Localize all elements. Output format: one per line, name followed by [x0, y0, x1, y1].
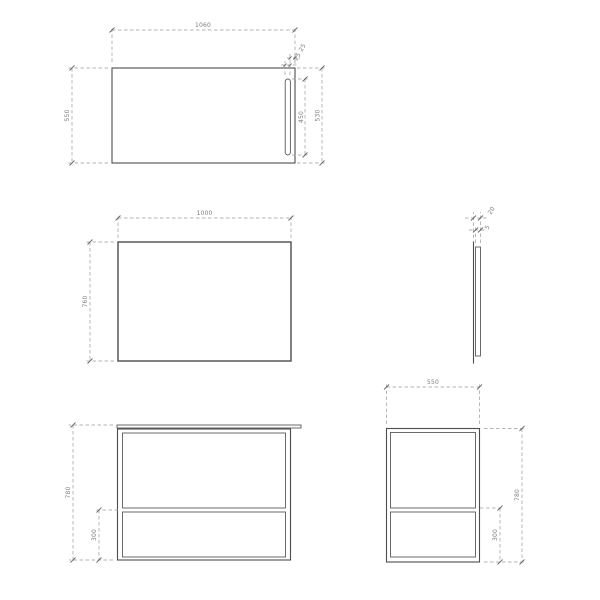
- cabinet-countertop-edge: [117, 425, 301, 428]
- cabinet-drawer-height-dimension: 300: [91, 508, 118, 563]
- cabinet-height-dimension: 780: [65, 423, 113, 563]
- dimension-label: 780: [65, 486, 72, 498]
- dimension-line: [86, 242, 114, 361]
- cabinet-side-height-dimension: 780: [484, 426, 526, 565]
- dimension-label: 1060: [195, 22, 211, 29]
- mirror-thickness-dimension: 20: [465, 206, 497, 243]
- dimension-line: [112, 26, 295, 62]
- dimension-label: 25: [298, 43, 308, 53]
- mirror-side-view: 20 5: [465, 206, 497, 363]
- dimension-label: 25: [293, 52, 303, 62]
- cabinet-outline: [118, 429, 291, 560]
- dimension-label: 550: [64, 109, 71, 121]
- dimension-label: 550: [427, 379, 439, 386]
- cabinet-upper-drawer: [123, 433, 286, 508]
- countertop-slot: [285, 79, 290, 155]
- plan-width-dimension: 1060: [110, 22, 298, 62]
- cabinet-side-outline: [387, 429, 480, 563]
- mirror-front-view: 1000 760: [82, 210, 294, 364]
- countertop-plan-view: 1060 550 450 530 25 25: [64, 22, 326, 166]
- cabinet-lower-drawer: [123, 512, 286, 557]
- dimension-label: 530: [315, 109, 322, 121]
- mirror-height-dimension: 760: [82, 240, 114, 364]
- dimension-line: [118, 214, 291, 238]
- cabinet-side-view: 550 780 300: [384, 379, 526, 565]
- countertop-outline: [112, 68, 295, 163]
- dimension-line: [387, 383, 480, 424]
- drawing-svg: 1060 550 450 530 25 25: [0, 0, 600, 600]
- dimension-label: 780: [514, 489, 521, 501]
- dimension-label: 300: [492, 529, 499, 541]
- cabinet-side-upper-panel: [391, 433, 476, 509]
- plan-depth-left-dimension: 550: [64, 66, 108, 166]
- cabinet-depth-dimension: 550: [384, 379, 482, 424]
- plan-slot-width-dimension: 25: [281, 52, 303, 75]
- cabinet-side-drawer-height-dimension: 300: [480, 506, 504, 565]
- mirror-outline: [118, 242, 291, 361]
- dimension-line: [95, 510, 118, 560]
- dimension-line: [68, 68, 108, 163]
- dimension-label: 300: [91, 529, 98, 541]
- technical-drawing-canvas: 1060 550 450 530 25 25: [0, 0, 600, 600]
- dimension-label: 1000: [196, 210, 212, 217]
- dimension-label: 760: [82, 295, 89, 307]
- dimension-label: 450: [298, 111, 305, 123]
- cabinet-side-lower-panel: [391, 512, 476, 557]
- cabinet-front-view: 780 300: [65, 423, 301, 563]
- mirror-panel-section: [476, 247, 481, 356]
- mirror-width-dimension: 1000: [116, 210, 294, 238]
- dimension-label: 20: [487, 206, 497, 216]
- dimension-label: 5: [484, 224, 492, 231]
